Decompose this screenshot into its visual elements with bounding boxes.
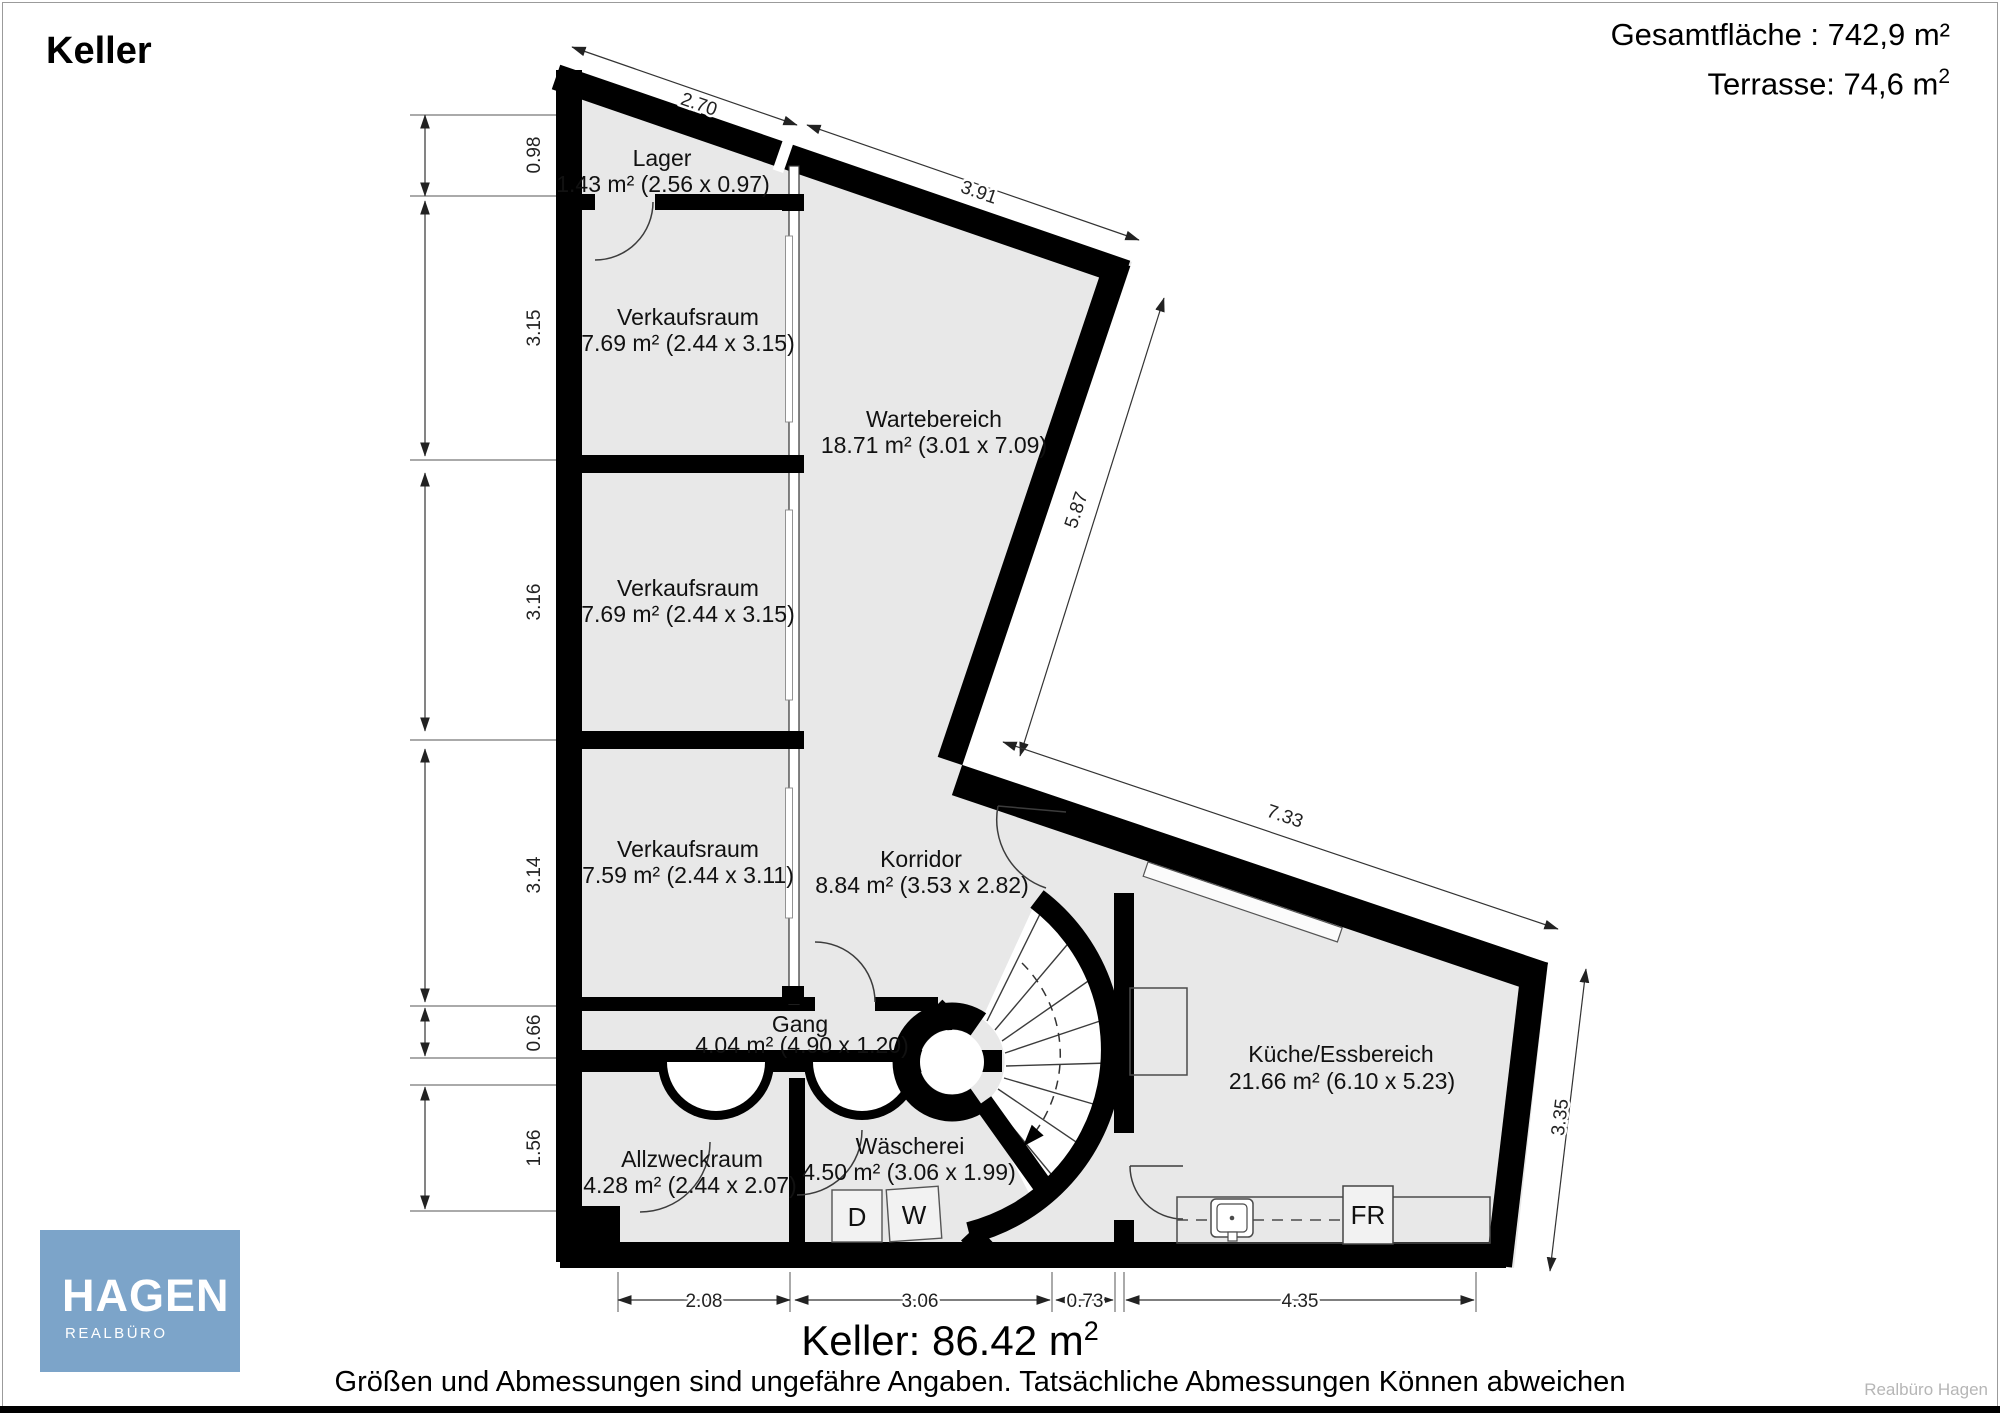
room-kueche-details: 21.66 m² (6.10 x 5.23) — [1229, 1068, 1455, 1094]
room-kueche-name: Küche/Essbereich — [1248, 1041, 1433, 1067]
dim-right-upper: 5.87 — [1061, 489, 1093, 531]
floor-total-area: Keller: 86.42 m2 — [801, 1316, 1099, 1365]
dryer-label: D — [848, 1202, 867, 1232]
area-summary: Gesamtfläche : 742,9 m² Terrasse: 74,6 m… — [1611, 14, 1950, 105]
room-lager-details: 1.43 m² (2.56 x 0.97) — [556, 171, 770, 197]
page-title: Keller — [46, 30, 152, 73]
dim-left-1: 3.15 — [524, 310, 545, 347]
dim-kitchen-top: 7.33 — [1264, 801, 1306, 833]
room-verkauf2-name: Verkaufsraum — [617, 575, 759, 601]
room-waescherei-details: 4.50 m² (3.06 x 1.99) — [802, 1159, 1016, 1185]
room-verkauf1-details: 7.69 m² (2.44 x 3.15) — [581, 330, 795, 356]
room-verkauf1-name: Verkaufsraum — [617, 304, 759, 330]
logo-brand-text: HAGEN — [62, 1270, 230, 1322]
sliding-panel-3 — [786, 788, 793, 918]
room-verkauf2-details: 7.69 m² (2.44 x 3.15) — [581, 601, 795, 627]
dim-left-5: 1.56 — [524, 1130, 545, 1167]
total-area-line: Gesamtfläche : 742,9 m² — [1611, 14, 1950, 56]
room-lager-name: Lager — [633, 145, 692, 171]
dim-right-lower: 3.35 — [1548, 1098, 1573, 1137]
floor-total-text: Keller: 86.42 m — [801, 1317, 1083, 1364]
dim-bottom-3: 4.35 — [1282, 1291, 1319, 1312]
disclaimer-text: Größen und Abmessungen sind ungefähre An… — [335, 1366, 1626, 1399]
dim-bottom-1: 3.06 — [902, 1291, 939, 1312]
sink-tap — [1228, 1232, 1237, 1241]
watermark-text: Realbüro Hagen — [1864, 1380, 1988, 1400]
stair-core-hole — [920, 1030, 984, 1094]
dim-left-2: 3.16 — [524, 584, 545, 621]
wall-kitchen-door-stub — [1066, 804, 1072, 832]
dim-left-4: 0.66 — [524, 1015, 545, 1052]
room-allzweckraum-name: Allzweckraum — [621, 1146, 763, 1172]
bottom-extension-lines — [618, 1272, 1476, 1312]
dim-left-0: 0.98 — [524, 137, 545, 174]
room-korridor-details: 8.84 m² (3.53 x 2.82) — [815, 872, 1029, 898]
room-verkauf3-details: 7.59 m² (2.44 x 3.11) — [582, 862, 794, 888]
room-verkauf3-name: Verkaufsraum — [617, 836, 759, 862]
hagen-logo: HAGEN REALBÜRO — [40, 1230, 240, 1372]
stair-wall-connector — [969, 1233, 985, 1250]
room-korridor-name: Korridor — [880, 846, 962, 872]
sink-drain — [1230, 1216, 1235, 1221]
room-allzweckraum-details: 4.28 m² (2.44 x 2.07) — [583, 1172, 797, 1198]
room-wartebereich-name: Wartebereich — [866, 406, 1002, 432]
sliding-panel-1 — [786, 236, 793, 422]
wall-corner-block — [582, 1206, 620, 1242]
logo-subtitle-text: REALBÜRO — [65, 1325, 168, 1342]
floorplan-drawing: D W FR — [0, 0, 2000, 1413]
dim-bottom-0: 2.08 — [686, 1291, 723, 1312]
room-waescherei-name: Wäscherei — [856, 1133, 965, 1159]
room-wartebereich-details: 18.71 m² (3.01 x 7.09) — [821, 432, 1047, 458]
dim-bottom-2: 0.73 — [1067, 1291, 1104, 1312]
dim-left-3: 3.14 — [524, 856, 545, 893]
terrace-text: Terrasse: 74,6 m — [1707, 66, 1938, 101]
terrace-sup: 2 — [1938, 65, 1950, 88]
fridge-label: FR — [1351, 1200, 1386, 1230]
washer-label: W — [902, 1200, 927, 1230]
room-gang-details: 4.04 m² (4.90 x 1.20) — [695, 1032, 909, 1058]
bottom-black-bar — [0, 1406, 2000, 1413]
floor-total-sup: 2 — [1084, 1316, 1099, 1346]
floorplan-page: D W FR — [0, 0, 2000, 1413]
terrace-line: Terrasse: 74,6 m2 — [1611, 56, 1950, 105]
